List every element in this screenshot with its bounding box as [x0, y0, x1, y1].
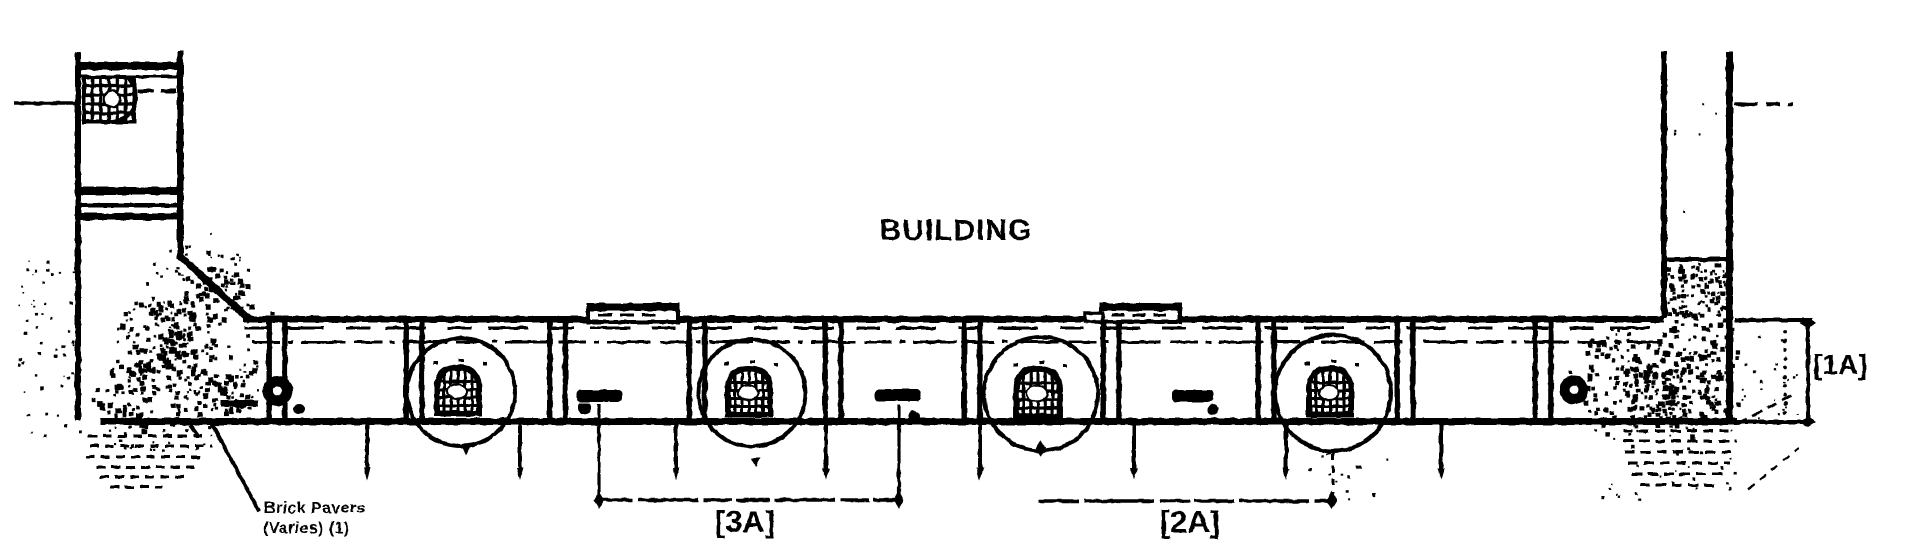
- svg-text:[2A]: [2A]: [1160, 504, 1220, 539]
- svg-text:[3A]: [3A]: [715, 504, 775, 539]
- svg-text:[1A]: [1A]: [1813, 349, 1867, 380]
- svg-text:(Varies) (1): (Varies) (1): [263, 520, 350, 537]
- svg-text:Brick Pavers: Brick Pavers: [264, 500, 366, 517]
- svg-text:BUILDING: BUILDING: [880, 214, 1033, 247]
